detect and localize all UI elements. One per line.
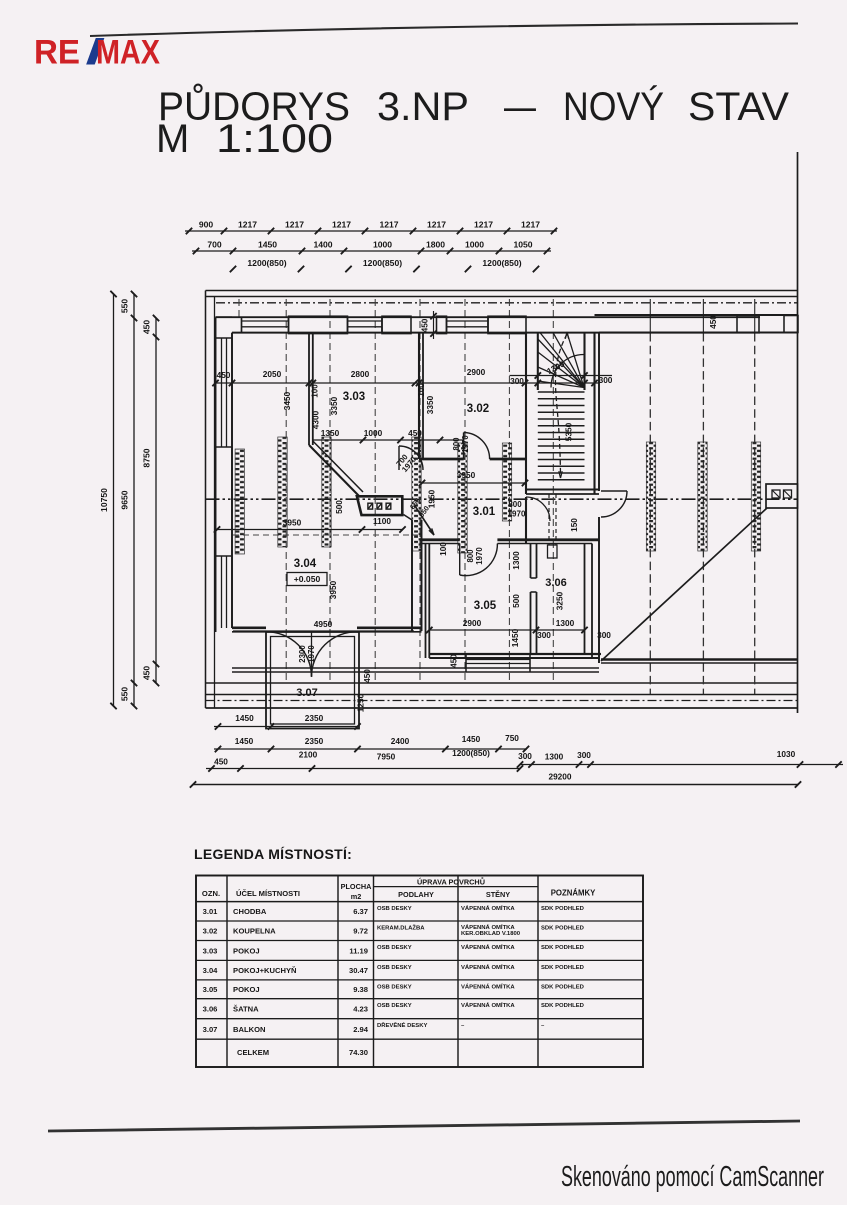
svg-text:900: 900 bbox=[199, 220, 214, 230]
svg-text:1300: 1300 bbox=[545, 752, 564, 762]
svg-text:450: 450 bbox=[142, 666, 152, 681]
svg-text:3.04: 3.04 bbox=[203, 966, 219, 975]
svg-text:KERAM.DLAŽBA: KERAM.DLAŽBA bbox=[377, 924, 425, 932]
svg-text:450: 450 bbox=[362, 669, 372, 683]
svg-text:3350: 3350 bbox=[425, 395, 435, 414]
svg-text:3.03: 3.03 bbox=[203, 946, 218, 955]
svg-text:ÚČEL MÍSTNOSTI: ÚČEL MÍSTNOSTI bbox=[236, 889, 300, 898]
svg-text:1950: 1950 bbox=[427, 489, 437, 508]
svg-text:1350: 1350 bbox=[321, 428, 340, 438]
svg-text:POZNÁMKY: POZNÁMKY bbox=[551, 889, 596, 898]
svg-text:1217: 1217 bbox=[238, 220, 257, 230]
svg-text:9.38: 9.38 bbox=[353, 985, 368, 994]
svg-text:5350: 5350 bbox=[564, 422, 574, 441]
svg-text:450: 450 bbox=[708, 315, 718, 329]
svg-text:POKOJ+KUCHYŇ: POKOJ+KUCHYŇ bbox=[233, 966, 297, 975]
svg-text:9650: 9650 bbox=[120, 490, 130, 509]
svg-text:1450: 1450 bbox=[235, 713, 254, 723]
svg-text:3.06: 3.06 bbox=[203, 1005, 218, 1014]
svg-text:500: 500 bbox=[334, 500, 344, 514]
svg-text:PLOCHA: PLOCHA bbox=[341, 882, 373, 891]
svg-text:450: 450 bbox=[142, 320, 152, 335]
svg-text:800: 800 bbox=[508, 500, 522, 509]
svg-text:1000: 1000 bbox=[465, 240, 484, 250]
svg-text:10750: 10750 bbox=[99, 488, 109, 512]
svg-text:2400: 2400 bbox=[391, 736, 410, 746]
svg-text:1200(850): 1200(850) bbox=[247, 258, 286, 268]
svg-text:2300: 2300 bbox=[298, 645, 307, 663]
svg-text:RE: RE bbox=[34, 34, 80, 72]
svg-text:2350: 2350 bbox=[305, 713, 324, 723]
svg-text:SDK PODHLED: SDK PODHLED bbox=[541, 926, 584, 932]
svg-text:3.NP: 3.NP bbox=[377, 85, 469, 129]
svg-text:450: 450 bbox=[217, 370, 231, 380]
svg-text:1450: 1450 bbox=[258, 240, 277, 250]
svg-text:300: 300 bbox=[597, 630, 611, 640]
svg-text:300: 300 bbox=[518, 751, 532, 761]
svg-text:1970: 1970 bbox=[461, 435, 470, 453]
svg-text:6.37: 6.37 bbox=[353, 907, 368, 916]
svg-text:BALKON: BALKON bbox=[233, 1025, 265, 1034]
svg-text:1100: 1100 bbox=[373, 516, 391, 526]
svg-text:3.03: 3.03 bbox=[343, 391, 365, 403]
svg-text:VÁPENNÁ OMÍTKA: VÁPENNÁ OMÍTKA bbox=[461, 982, 515, 990]
svg-text:1300: 1300 bbox=[511, 551, 521, 570]
svg-text:1217: 1217 bbox=[332, 220, 351, 230]
svg-text:1200(850): 1200(850) bbox=[482, 258, 521, 268]
svg-text:1970: 1970 bbox=[307, 645, 316, 663]
svg-text:3.02: 3.02 bbox=[467, 403, 489, 415]
svg-text:SDK PODHLED: SDK PODHLED bbox=[541, 1003, 584, 1009]
svg-text:1000: 1000 bbox=[364, 428, 383, 438]
svg-text:3950: 3950 bbox=[283, 518, 302, 528]
svg-text:550: 550 bbox=[120, 299, 130, 314]
svg-text:–: – bbox=[504, 85, 537, 129]
svg-text:4.23: 4.23 bbox=[353, 1005, 368, 1014]
svg-text:3.02: 3.02 bbox=[203, 927, 218, 936]
svg-text:100: 100 bbox=[311, 384, 320, 398]
svg-text:3.07: 3.07 bbox=[296, 687, 317, 699]
svg-text:100: 100 bbox=[438, 542, 448, 556]
svg-text:OSB DESKY: OSB DESKY bbox=[377, 945, 412, 951]
svg-text:1030: 1030 bbox=[777, 749, 796, 759]
svg-text:8750: 8750 bbox=[142, 448, 152, 467]
svg-text:100: 100 bbox=[417, 383, 426, 397]
svg-text:500: 500 bbox=[511, 594, 521, 608]
svg-text:2800: 2800 bbox=[351, 369, 370, 379]
svg-text:7950: 7950 bbox=[377, 752, 396, 762]
svg-text:29200: 29200 bbox=[548, 772, 571, 782]
svg-text:VÁPENNÁ OMÍTKA: VÁPENNÁ OMÍTKA bbox=[461, 904, 515, 912]
svg-text:300: 300 bbox=[577, 750, 591, 760]
svg-text:VÁPENNÁ OMÍTKA: VÁPENNÁ OMÍTKA bbox=[461, 923, 515, 931]
svg-text:3350: 3350 bbox=[329, 396, 339, 415]
svg-text:STAV: STAV bbox=[688, 85, 789, 129]
svg-text:1400: 1400 bbox=[313, 240, 332, 250]
svg-text:1450: 1450 bbox=[462, 734, 481, 744]
svg-text:1450: 1450 bbox=[510, 628, 520, 647]
svg-text:1217: 1217 bbox=[521, 220, 540, 230]
svg-text:2.94: 2.94 bbox=[353, 1025, 369, 1034]
svg-text:3950: 3950 bbox=[457, 470, 476, 480]
svg-text:550: 550 bbox=[120, 687, 130, 702]
svg-text:3.01: 3.01 bbox=[473, 506, 496, 518]
svg-text:1217: 1217 bbox=[379, 220, 398, 230]
svg-text:1200(850): 1200(850) bbox=[452, 748, 490, 758]
svg-text:ÚPRAVA POVRCHŮ: ÚPRAVA POVRCHŮ bbox=[417, 877, 485, 887]
svg-text:3.04: 3.04 bbox=[294, 558, 317, 570]
svg-text:POKOJ: POKOJ bbox=[233, 985, 260, 994]
svg-text:1800: 1800 bbox=[426, 240, 445, 250]
svg-text:PODLAHY: PODLAHY bbox=[398, 890, 434, 899]
svg-text:300: 300 bbox=[599, 375, 613, 385]
svg-text:800: 800 bbox=[466, 549, 475, 563]
svg-text:POKOJ: POKOJ bbox=[233, 946, 260, 955]
svg-text:1970: 1970 bbox=[475, 547, 484, 565]
svg-text:OSB DESKY: OSB DESKY bbox=[377, 906, 412, 912]
svg-text:4950: 4950 bbox=[314, 619, 333, 629]
svg-text:3.07: 3.07 bbox=[203, 1025, 218, 1034]
svg-text:VÁPENNÁ OMÍTKA: VÁPENNÁ OMÍTKA bbox=[461, 963, 515, 971]
svg-text:3.05: 3.05 bbox=[203, 985, 219, 994]
svg-text:KOUPELNA: KOUPELNA bbox=[233, 927, 276, 936]
svg-text:SDK PODHLED: SDK PODHLED bbox=[541, 945, 584, 951]
svg-text:1000: 1000 bbox=[373, 240, 392, 250]
svg-text:NOVÝ: NOVÝ bbox=[563, 84, 664, 129]
svg-text:ŠATNA: ŠATNA bbox=[233, 1005, 259, 1014]
svg-text:1200(850): 1200(850) bbox=[363, 258, 402, 268]
svg-text:2050: 2050 bbox=[263, 369, 282, 379]
svg-text:OSB DESKY: OSB DESKY bbox=[377, 1003, 412, 1009]
svg-text:1217: 1217 bbox=[474, 220, 493, 230]
svg-text:KER.OBKLAD V.1800: KER.OBKLAD V.1800 bbox=[461, 931, 521, 937]
svg-text:SDK PODHLED: SDK PODHLED bbox=[541, 984, 584, 990]
svg-text:1970: 1970 bbox=[508, 510, 526, 519]
svg-text:1217: 1217 bbox=[285, 220, 304, 230]
svg-text:VÁPENNÁ OMÍTKA: VÁPENNÁ OMÍTKA bbox=[461, 943, 515, 951]
svg-text:11.19: 11.19 bbox=[349, 946, 368, 955]
svg-text:1300: 1300 bbox=[556, 618, 575, 628]
svg-text:3.01: 3.01 bbox=[203, 907, 219, 916]
svg-text:LEGENDA MÍSTNOSTÍ:: LEGENDA MÍSTNOSTÍ: bbox=[194, 846, 352, 862]
svg-text:M: M bbox=[156, 117, 189, 161]
svg-text:3450: 3450 bbox=[282, 391, 292, 410]
svg-text:450: 450 bbox=[214, 757, 228, 767]
svg-text:450: 450 bbox=[408, 428, 422, 438]
svg-text:+0.050: +0.050 bbox=[294, 574, 321, 584]
svg-text:700: 700 bbox=[207, 240, 222, 250]
svg-text:OSB DESKY: OSB DESKY bbox=[377, 984, 412, 990]
svg-text:SDK PODHLED: SDK PODHLED bbox=[541, 906, 584, 912]
svg-text:2100: 2100 bbox=[299, 750, 318, 760]
svg-text:2350: 2350 bbox=[305, 736, 324, 746]
svg-text:150: 150 bbox=[569, 518, 579, 532]
svg-text:1450: 1450 bbox=[235, 736, 254, 746]
svg-text:300: 300 bbox=[537, 630, 551, 640]
svg-text:750: 750 bbox=[505, 733, 519, 743]
svg-text:3.06: 3.06 bbox=[545, 577, 566, 589]
svg-text:m2: m2 bbox=[351, 892, 362, 901]
svg-text:Skenováno pomocí CamScanner: Skenováno pomocí CamScanner bbox=[561, 1161, 824, 1193]
svg-text:1217: 1217 bbox=[427, 220, 446, 230]
svg-text:3950: 3950 bbox=[328, 580, 338, 599]
svg-text:450: 450 bbox=[449, 654, 459, 668]
svg-text:CELKEM: CELKEM bbox=[237, 1048, 269, 1057]
svg-text:450: 450 bbox=[420, 318, 430, 332]
svg-text:1050: 1050 bbox=[513, 240, 532, 250]
svg-text:800: 800 bbox=[452, 437, 461, 451]
svg-text:30.47: 30.47 bbox=[349, 966, 368, 975]
svg-text:1:100: 1:100 bbox=[216, 117, 333, 161]
svg-text:74.30: 74.30 bbox=[349, 1048, 368, 1057]
svg-text:MAX: MAX bbox=[96, 34, 160, 72]
svg-text:CHODBA: CHODBA bbox=[233, 907, 267, 916]
svg-text:VÁPENNÁ OMÍTKA: VÁPENNÁ OMÍTKA bbox=[461, 1001, 515, 1009]
svg-text:DŘEVĚNÉ DESKY: DŘEVĚNÉ DESKY bbox=[377, 1021, 427, 1029]
svg-text:300: 300 bbox=[510, 376, 524, 386]
svg-text:2900: 2900 bbox=[467, 367, 486, 377]
svg-text:3.05: 3.05 bbox=[474, 600, 497, 612]
svg-text:OZN.: OZN. bbox=[202, 889, 220, 898]
svg-text:2900: 2900 bbox=[463, 618, 482, 628]
svg-text:4300: 4300 bbox=[311, 410, 321, 429]
svg-text:OSB DESKY: OSB DESKY bbox=[377, 965, 412, 971]
svg-text:STĚNY: STĚNY bbox=[486, 890, 510, 899]
svg-text:3250: 3250 bbox=[555, 591, 565, 610]
svg-text:1250: 1250 bbox=[356, 693, 366, 712]
svg-text:9.72: 9.72 bbox=[353, 927, 368, 936]
svg-text:SDK PODHLED: SDK PODHLED bbox=[541, 965, 584, 971]
